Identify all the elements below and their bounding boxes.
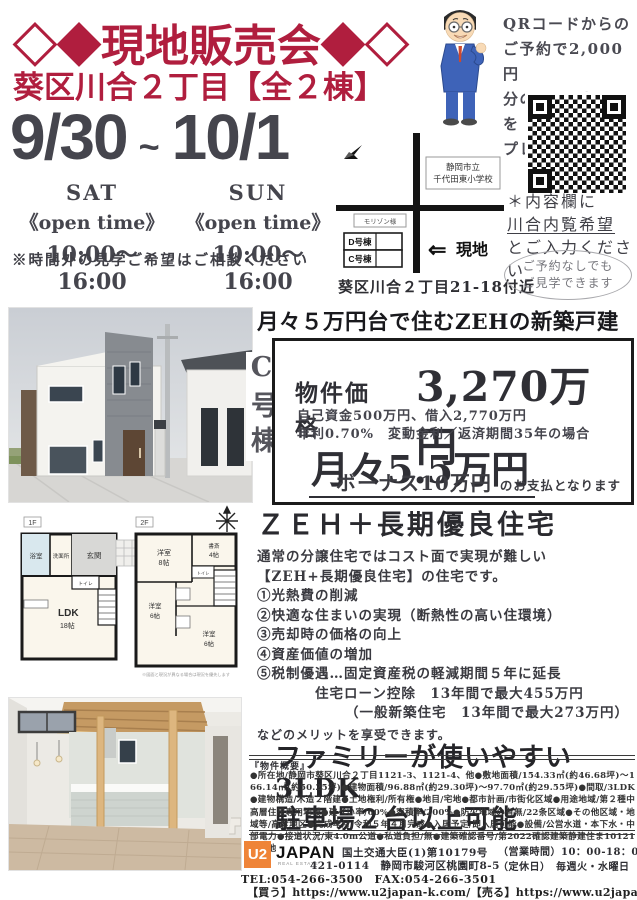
day-label: SAT bbox=[12, 180, 172, 205]
zeh-loan-note-general: （一般新築住宅 13年間で最大273万円） bbox=[345, 704, 635, 724]
floor-plan: 1F 2F 浴室 洗面所 玄関 トイレ LDK 18帖 bbox=[14, 504, 250, 690]
school-name-line1: 静岡市立 bbox=[446, 162, 481, 172]
bonus-amount: ボーナス10万円 bbox=[336, 467, 492, 496]
room-west6b: 洋室 bbox=[203, 629, 217, 638]
site-arrow-icon: ⇐ bbox=[428, 237, 446, 262]
closed-line: （定休日） 毎週火・水曜日 bbox=[498, 860, 637, 875]
room-study-size: 4帖 bbox=[209, 550, 220, 559]
floorplan-note: ※図面と現況が異なる場合は現況を優先します bbox=[142, 671, 230, 678]
hours-line: （営業時間）10：00-18：00 bbox=[498, 845, 637, 860]
qr-finder-icon bbox=[602, 95, 626, 119]
location-map: 静岡市立 千代田東小学校 モリゾン様 D号棟 C号棟 ⇐ 現地 bbox=[336, 133, 504, 273]
room-toilet-1f: トイレ bbox=[78, 582, 93, 587]
business-hours: （営業時間）10：00-18：00 （定休日） 毎週火・水曜日 bbox=[498, 845, 637, 875]
room-west8-size: 8帖 bbox=[159, 558, 170, 567]
day-column-sun: SUN 《open time》 10:00～16:00 bbox=[178, 180, 338, 295]
zeh-item-3: ③売却時の価格の向上 bbox=[257, 626, 635, 646]
salesman-illustration bbox=[418, 2, 502, 130]
day-column-sat: SAT 《open time》 10:00～16:00 bbox=[12, 180, 172, 295]
divider-rule-bottom bbox=[249, 830, 635, 835]
zeh-item-1: ①光熱費の削減 bbox=[257, 587, 635, 607]
floor1-label: 1F bbox=[28, 520, 36, 527]
zeh-item-5: ⑤税制優遇…固定資産税の軽減期間５年に延長 bbox=[257, 665, 635, 685]
date-tilde: ~ bbox=[139, 126, 160, 168]
map-landmark-box: モリゾン様 bbox=[354, 214, 406, 227]
zeh-title: ＺＥＨ＋長期優良住宅 bbox=[257, 503, 635, 542]
sell-url-link[interactable]: https://www.u2japan-u.com/ bbox=[516, 886, 637, 899]
room-ldk-size: 18帖 bbox=[60, 621, 75, 630]
stairs-2f bbox=[214, 570, 236, 606]
resv-keyword: 川合内覧希望 bbox=[507, 213, 637, 236]
zeh-item-2: ②快適な住まいの実現（断熱性の高い住環境） bbox=[257, 607, 635, 627]
room-west6a: 洋室 bbox=[149, 601, 163, 610]
map-building-boxes: D号棟 C号棟 bbox=[344, 233, 402, 267]
qr-promo-line: ご予約で2,000円 bbox=[503, 37, 637, 87]
finance-detail-1: 自己資金500万円、借入2,770万円 bbox=[297, 405, 527, 424]
room-genkan: 玄関 bbox=[87, 550, 102, 560]
visit-note: ※時間外の見学ご希望はご相談ください bbox=[12, 249, 309, 270]
qr-finder-icon bbox=[528, 95, 552, 119]
flyer-page: ◇◆現地販売会◆◇ 葵区川合２丁目【全２棟】 QRコードからの ご予約で2,00… bbox=[0, 0, 637, 900]
exterior-photo bbox=[9, 308, 252, 502]
zeh-intro-2: 【ZEH+長期優良住宅】の住宅です。 bbox=[257, 568, 635, 588]
bonus-suffix: のお支払となります bbox=[500, 475, 621, 494]
school-name-line2: 千代田東小学校 bbox=[433, 174, 493, 184]
building-d-label: D号棟 bbox=[348, 237, 372, 247]
day-label: SUN bbox=[178, 180, 338, 205]
landmark-label: モリゾン様 bbox=[364, 217, 397, 226]
room-west8: 洋室 bbox=[157, 548, 171, 557]
buy-label: 【買う】 bbox=[247, 886, 292, 899]
badge-line1: ご予約なしでも bbox=[523, 258, 614, 275]
zeh-outro: などのメリットを享受できます。 bbox=[257, 726, 635, 743]
date-end: 10/1 bbox=[172, 100, 289, 174]
site-label: 現地 bbox=[456, 240, 488, 259]
zeh-item-4: ④資産価値の増加 bbox=[257, 646, 635, 666]
company-logo-icon: U2 bbox=[244, 841, 271, 868]
zeh-intro-1: 通常の分譲住宅ではコスト面で実現が難しい bbox=[257, 548, 635, 568]
no-reservation-badge: ご予約なしでも ご見学できます bbox=[504, 250, 632, 300]
room-west6a-size: 6帖 bbox=[150, 611, 161, 620]
open-time-label: 《open time》 bbox=[12, 208, 172, 235]
room-wash: 洗面所 bbox=[53, 552, 70, 560]
resv-line1: ＊内容欄に bbox=[507, 190, 637, 213]
price-box: 物件価格 3,270万円 自己資金500万円、借入2,770万円 年利0.70%… bbox=[272, 338, 634, 505]
event-dates: 9/30 ~ 10/1 bbox=[10, 100, 288, 174]
room-bath: 浴室 bbox=[30, 551, 44, 560]
building-c-label: C号棟 bbox=[348, 254, 372, 264]
badge-line2: ご見学できます bbox=[522, 275, 613, 292]
room-west6b-size: 6帖 bbox=[204, 639, 215, 648]
map-school-box: 静岡市立 千代田東小学校 bbox=[426, 157, 500, 189]
bonus-row: ボーナス10万円 のお支払となります bbox=[336, 467, 621, 496]
date-start: 9/30 bbox=[10, 100, 127, 174]
stairs-1f bbox=[98, 589, 116, 625]
open-time-label: 《open time》 bbox=[178, 208, 338, 235]
sell-label: 【売る】 bbox=[471, 886, 516, 899]
room-ldk: LDK bbox=[58, 608, 79, 619]
compass-icon bbox=[340, 139, 364, 163]
website-links: 【買う】https://www.u2japan-k.com/【売る】https:… bbox=[247, 884, 637, 900]
room-study: 書斎 bbox=[208, 542, 220, 550]
buy-url-link[interactable]: https://www.u2japan-k.com/ bbox=[292, 886, 470, 899]
qr-promo-line: QRコードからの bbox=[503, 12, 637, 37]
zeh-loan-note: 住宅ローン控除 13年間で最大455万円 bbox=[315, 685, 635, 705]
qr-code bbox=[528, 95, 626, 193]
room-toilet-2f: トイレ bbox=[197, 571, 210, 576]
offer-headline: 月々５万円台で住むZEHの新築戸建 bbox=[257, 305, 619, 336]
floor2-label: 2F bbox=[140, 520, 148, 527]
interior-photo bbox=[9, 698, 241, 870]
